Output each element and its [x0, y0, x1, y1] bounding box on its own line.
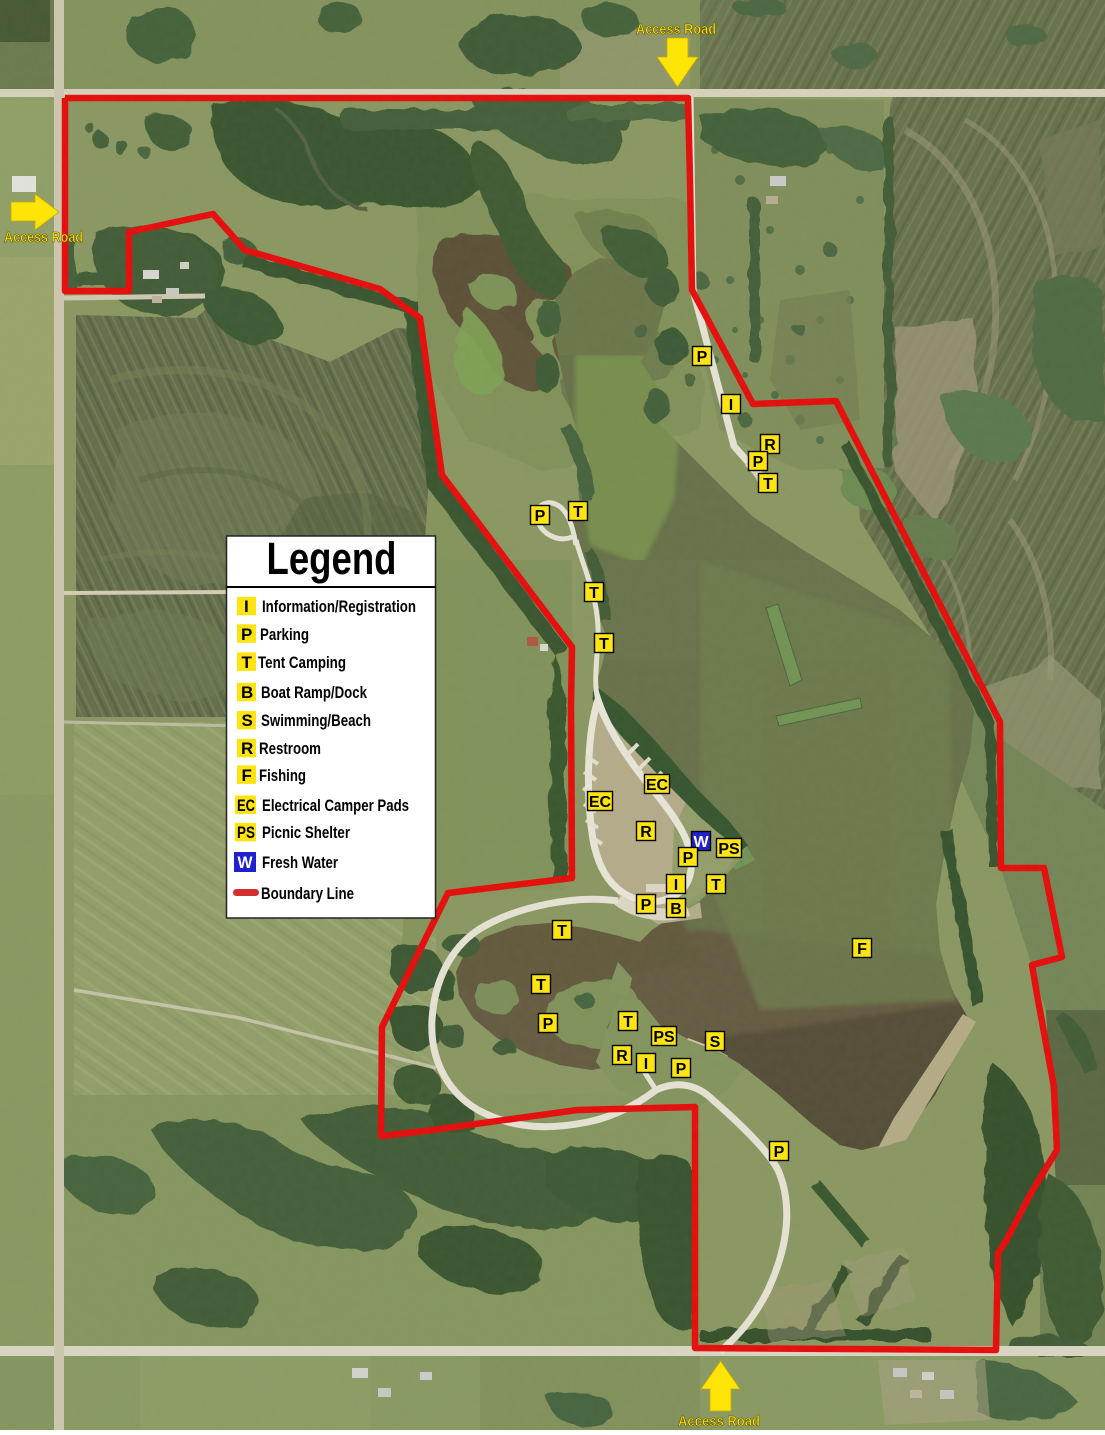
svg-text:I: I: [674, 877, 678, 894]
svg-text:Access Road: Access Road: [4, 229, 83, 246]
svg-text:F: F: [857, 941, 867, 958]
svg-text:I: I: [729, 397, 733, 414]
svg-text:T: T: [599, 636, 609, 653]
svg-text:I: I: [644, 1056, 648, 1073]
svg-text:Fishing: Fishing: [259, 766, 306, 785]
svg-text:R: R: [640, 824, 652, 841]
svg-text:Tent Camping: Tent Camping: [258, 653, 346, 672]
svg-text:F: F: [242, 766, 252, 785]
svg-text:PS: PS: [653, 1029, 675, 1046]
svg-text:Electrical Camper Pads: Electrical Camper Pads: [262, 796, 409, 815]
svg-text:Swimming/Beach: Swimming/Beach: [261, 711, 371, 730]
svg-text:Parking: Parking: [260, 625, 309, 644]
svg-text:Access Road: Access Road: [678, 1413, 760, 1430]
svg-text:Access Road: Access Road: [636, 21, 716, 38]
svg-text:Information/Registration: Information/Registration: [262, 597, 416, 616]
svg-text:P: P: [753, 454, 764, 471]
svg-text:B: B: [670, 901, 682, 918]
svg-text:Legend: Legend: [267, 533, 397, 584]
svg-text:Restroom: Restroom: [259, 739, 321, 758]
svg-text:P: P: [543, 1016, 554, 1033]
svg-text:EC: EC: [646, 777, 669, 794]
svg-text:P: P: [683, 850, 694, 867]
svg-text:PS: PS: [718, 841, 740, 858]
svg-text:S: S: [242, 711, 253, 730]
svg-text:P: P: [535, 508, 546, 525]
svg-text:R: R: [616, 1048, 628, 1065]
svg-text:P: P: [697, 349, 708, 366]
svg-text:I: I: [244, 597, 249, 616]
svg-text:W: W: [238, 853, 254, 872]
svg-text:T: T: [557, 923, 567, 940]
svg-text:EC: EC: [589, 794, 612, 811]
svg-text:R: R: [241, 739, 253, 758]
svg-text:P: P: [241, 625, 252, 644]
svg-text:Boundary Line: Boundary Line: [261, 884, 354, 903]
svg-text:S: S: [710, 1034, 721, 1051]
svg-text:Picnic Shelter: Picnic Shelter: [262, 823, 350, 842]
svg-text:EC: EC: [237, 796, 255, 815]
svg-text:T: T: [763, 476, 773, 493]
svg-text:T: T: [573, 504, 583, 521]
svg-text:P: P: [774, 1144, 785, 1161]
svg-text:B: B: [241, 683, 253, 702]
svg-text:Boat Ramp/Dock: Boat Ramp/Dock: [261, 683, 367, 702]
svg-text:T: T: [623, 1014, 633, 1031]
svg-text:P: P: [641, 897, 652, 914]
svg-text:P: P: [676, 1061, 687, 1078]
svg-text:T: T: [242, 653, 253, 672]
svg-text:PS: PS: [237, 823, 255, 842]
svg-text:Fresh Water: Fresh Water: [262, 853, 338, 872]
svg-text:T: T: [711, 877, 721, 894]
svg-text:T: T: [536, 977, 546, 994]
svg-text:T: T: [589, 585, 599, 602]
